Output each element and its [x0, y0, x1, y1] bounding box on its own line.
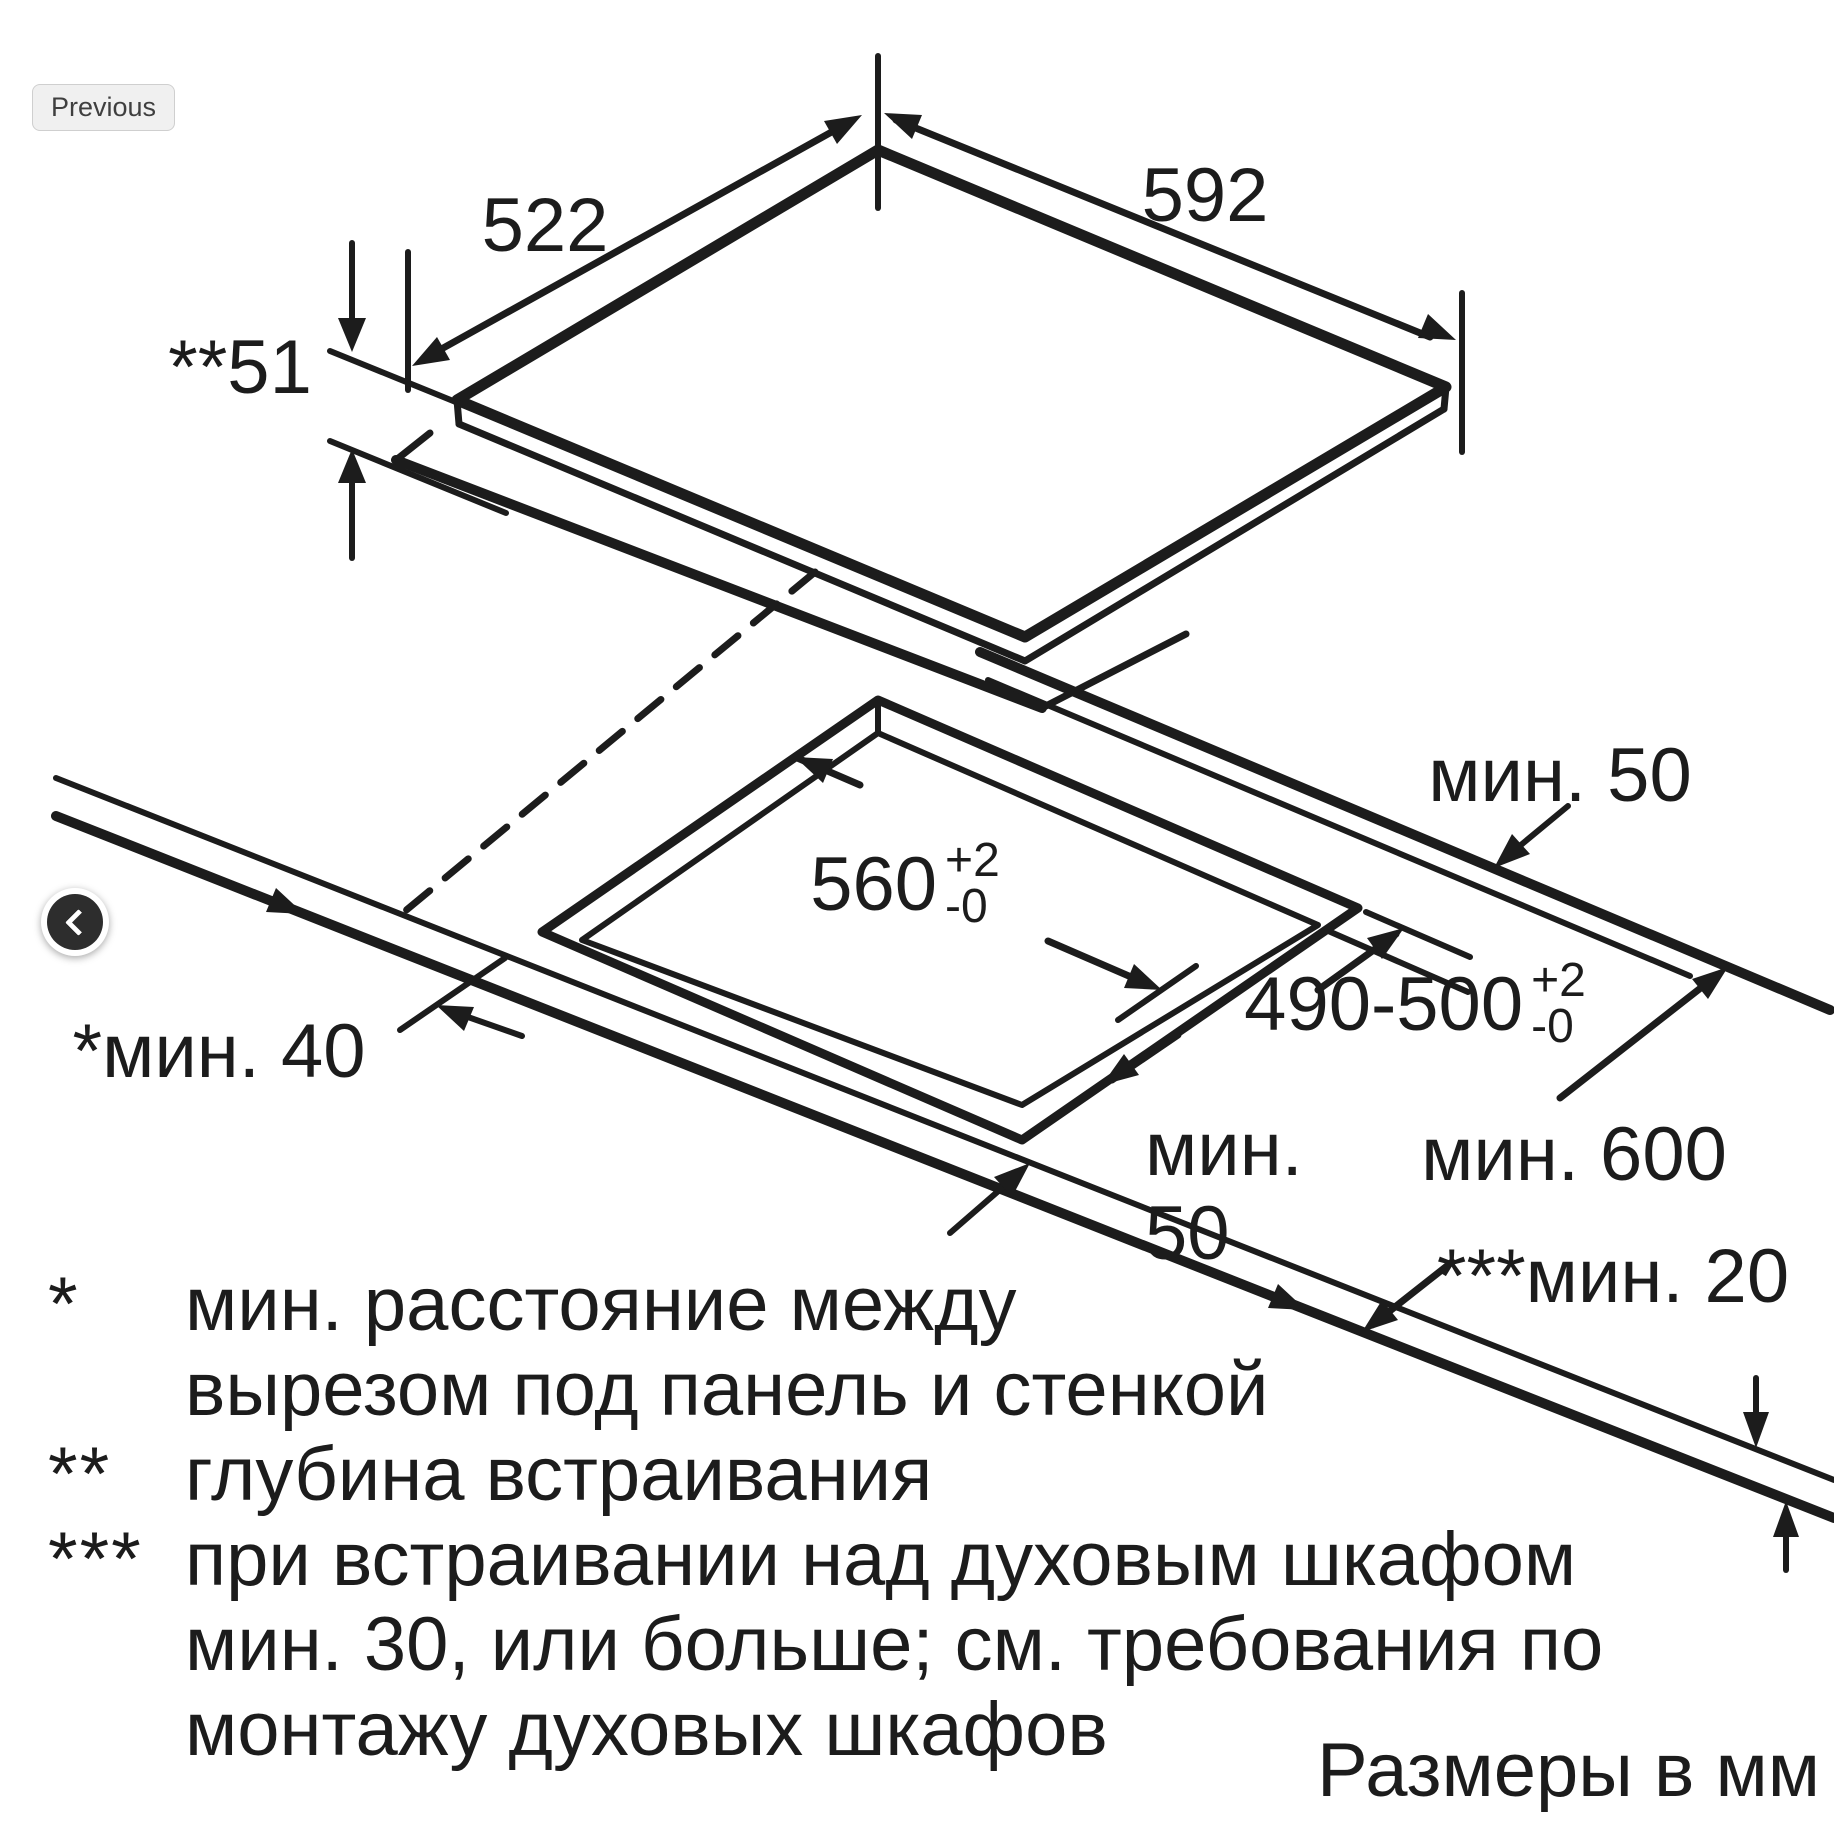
tolerance-minus: -0 — [945, 884, 1000, 930]
footnote-text: вырезом под панель и стенкой — [185, 1347, 1268, 1432]
label-cutout-depth: 490-500+2-0 — [1244, 964, 1586, 1056]
label-min-worktop-depth: мин. 600 — [1421, 1117, 1727, 1193]
arrowhead — [436, 1005, 474, 1031]
arrowhead — [338, 318, 366, 352]
cooktop-chassis-side — [1042, 634, 1186, 708]
carousel-previous-button[interactable] — [41, 888, 109, 956]
tolerance-plus: +2 — [1531, 958, 1586, 1004]
footnote-row: *** при встраивании над духовым шкафом — [48, 1517, 1768, 1602]
footnote-text: при встраивании над духовым шкафом — [185, 1517, 1576, 1602]
footnote-row: ** глубина встраивания — [48, 1432, 1768, 1517]
arrowhead — [884, 113, 922, 139]
footnote-marker: *** — [48, 1517, 185, 1602]
label-min-side-clearance: *мин. 40 — [72, 1014, 365, 1090]
min-front-line1: мин. — [1145, 1108, 1303, 1192]
footnote-text: мин. расстояние между — [185, 1262, 1016, 1347]
arrowhead — [266, 888, 304, 914]
arrowhead — [824, 115, 862, 144]
previous-button[interactable]: Previous — [32, 84, 175, 131]
footnote-row: * мин. расстояние между — [48, 1262, 1768, 1347]
arrowhead — [412, 337, 450, 366]
footnote-marker — [48, 1602, 185, 1687]
label-appliance-depth: 522 — [482, 188, 609, 264]
alignment-dashed-line — [404, 572, 815, 912]
footnote-row: вырезом под панель и стенкой — [48, 1347, 1768, 1432]
footnote-marker: ** — [48, 1432, 185, 1517]
footnote-marker: * — [48, 1262, 185, 1347]
footnote-marker — [48, 1347, 185, 1432]
cutout-width-value: 560 — [810, 842, 937, 927]
footnotes: * мин. расстояние между вырезом под пане… — [48, 1262, 1768, 1772]
label-appliance-width: 592 — [1142, 158, 1269, 234]
arrowhead — [1124, 964, 1162, 990]
arrowhead — [1418, 314, 1456, 340]
cutout-depth-tolerance: +2-0 — [1531, 958, 1586, 1050]
label-build-in-height: **51 — [168, 330, 312, 406]
footnote-marker — [48, 1687, 185, 1772]
carousel-button-disc — [47, 894, 103, 950]
label-cutout-width: 560+2-0 — [810, 844, 1000, 936]
footnote-text: монтажу духовых шкафов — [185, 1687, 1108, 1772]
label-min-back-clearance: мин. 50 — [1428, 738, 1691, 814]
cutout-depth-value: 490-500 — [1244, 962, 1523, 1047]
chevron-left-icon — [65, 909, 92, 936]
footnote-text: глубина встраивания — [185, 1432, 932, 1517]
cooktop-edge-connector — [1444, 387, 1446, 409]
footnote-row: мин. 30, или больше; см. требования по — [48, 1602, 1768, 1687]
tolerance-minus: -0 — [1531, 1004, 1586, 1050]
page: 522 592 **51 мин. 50 560+2-0 490-500+2-0… — [0, 0, 1834, 1826]
footnote-text: мин. 30, или больше; см. требования по — [185, 1602, 1603, 1687]
tolerance-plus: +2 — [945, 838, 1000, 884]
label-min-front-clearance: мин. 50 — [1145, 1108, 1303, 1276]
units-note: Размеры в мм — [1317, 1733, 1820, 1809]
cutout-width-tolerance: +2-0 — [945, 838, 1000, 930]
cooktop-chassis-step — [396, 433, 430, 460]
